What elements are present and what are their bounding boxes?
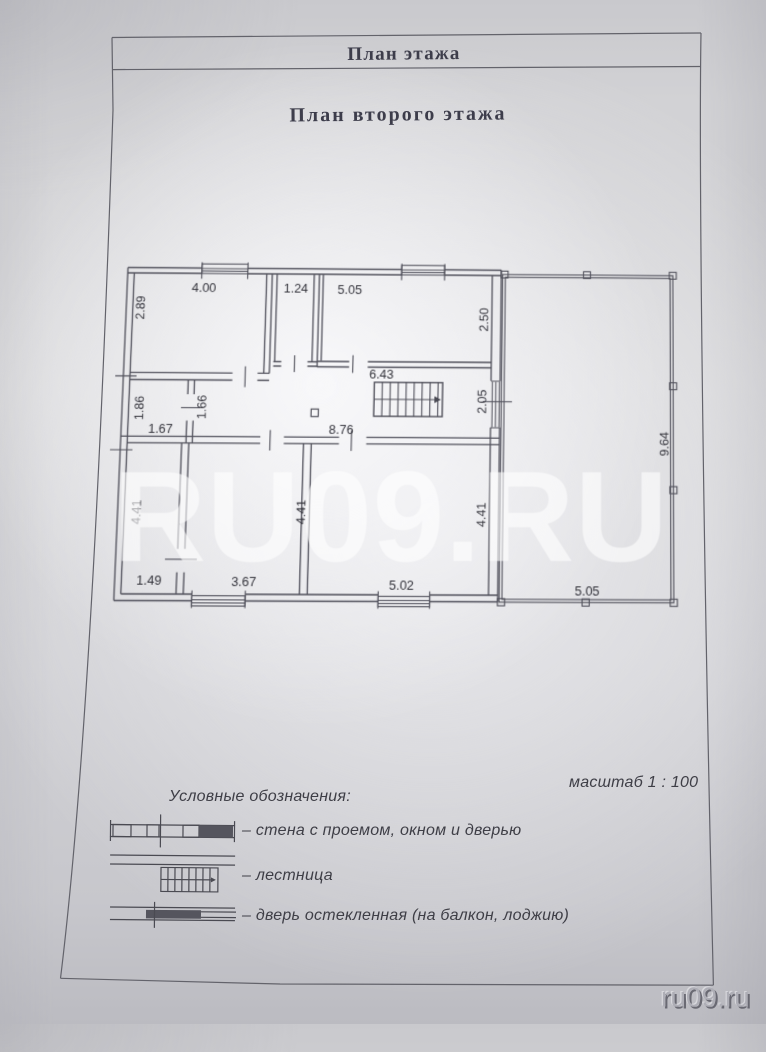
svg-text:– лестница: – лестница — [241, 867, 333, 884]
svg-text:План второго этажа: План второго этажа — [289, 103, 506, 127]
svg-text:– дверь остекленная (на балкон: – дверь остекленная (на балкон, лоджию) — [241, 907, 569, 924]
svg-text:RU09.RU: RU09.RU — [113, 445, 668, 589]
svg-text:ru09.ru: ru09.ru — [661, 982, 750, 1013]
svg-text:Условные обозначения:: Условные обозначения: — [168, 788, 351, 805]
svg-text:– стена с проемом, окном и две: – стена с проемом, окном и дверью — [241, 822, 521, 839]
svg-text:масштаб 1 : 100: масштаб 1 : 100 — [569, 774, 698, 791]
svg-text:План этажа: План этажа — [347, 43, 460, 65]
